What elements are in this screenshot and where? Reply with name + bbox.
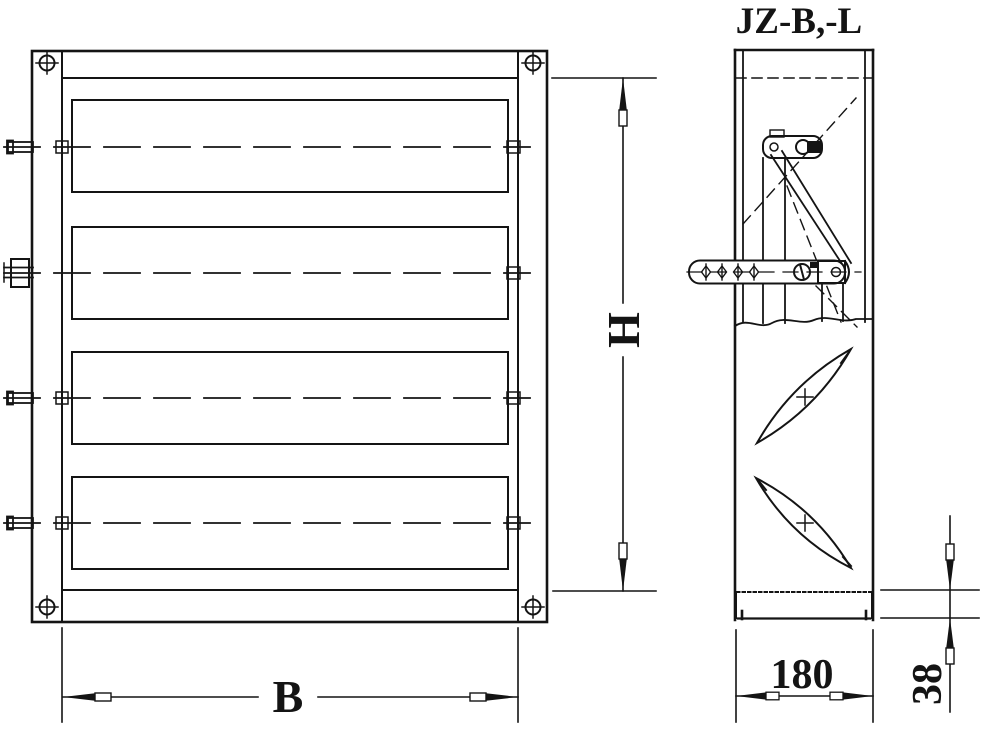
dim-width-label: B (273, 671, 304, 722)
frame-outer (32, 51, 547, 622)
dim-180-arrow-right (843, 692, 873, 699)
dim-38-arrow-down (946, 560, 954, 590)
dim-flange-label: 38 (905, 663, 951, 705)
blade-section-lower (756, 478, 851, 568)
front-view (4, 51, 547, 622)
corner-screws (36, 52, 544, 618)
linkage-rods (763, 158, 843, 323)
dim-180-arrow-left (736, 692, 766, 699)
shaft-bearings (56, 141, 520, 529)
dim-b-arrow-right (486, 693, 518, 701)
control-lever (687, 261, 861, 284)
technical-drawing-sheet: H B 180 (0, 0, 1000, 729)
corner-screw-icon (522, 596, 544, 618)
axle-pins (7, 141, 33, 530)
crank-arm (763, 130, 822, 158)
phantom-lines (743, 98, 857, 327)
dim-height-label: H (598, 312, 649, 348)
side-view (687, 50, 873, 620)
corner-screw-icon (36, 596, 58, 618)
dim-h-arrow-down (619, 559, 627, 591)
blade-center-lines (4, 147, 530, 523)
dim-depth-label: 180 (771, 652, 834, 698)
blade-section-upper (757, 349, 851, 443)
corner-screw-icon (36, 52, 58, 74)
break-line (735, 318, 873, 326)
connecting-link (771, 151, 851, 267)
drawing-title: JZ-B,-L (736, 1, 862, 42)
dim-b-arrow-left (63, 693, 95, 701)
dim-38-arrow-up (946, 618, 954, 648)
dim-h-arrow-up (619, 78, 627, 110)
louver-blade-1 (72, 100, 508, 192)
bottom-channel (736, 592, 872, 619)
damper-drawing: H B 180 (0, 0, 1000, 729)
corner-screw-icon (522, 52, 544, 74)
